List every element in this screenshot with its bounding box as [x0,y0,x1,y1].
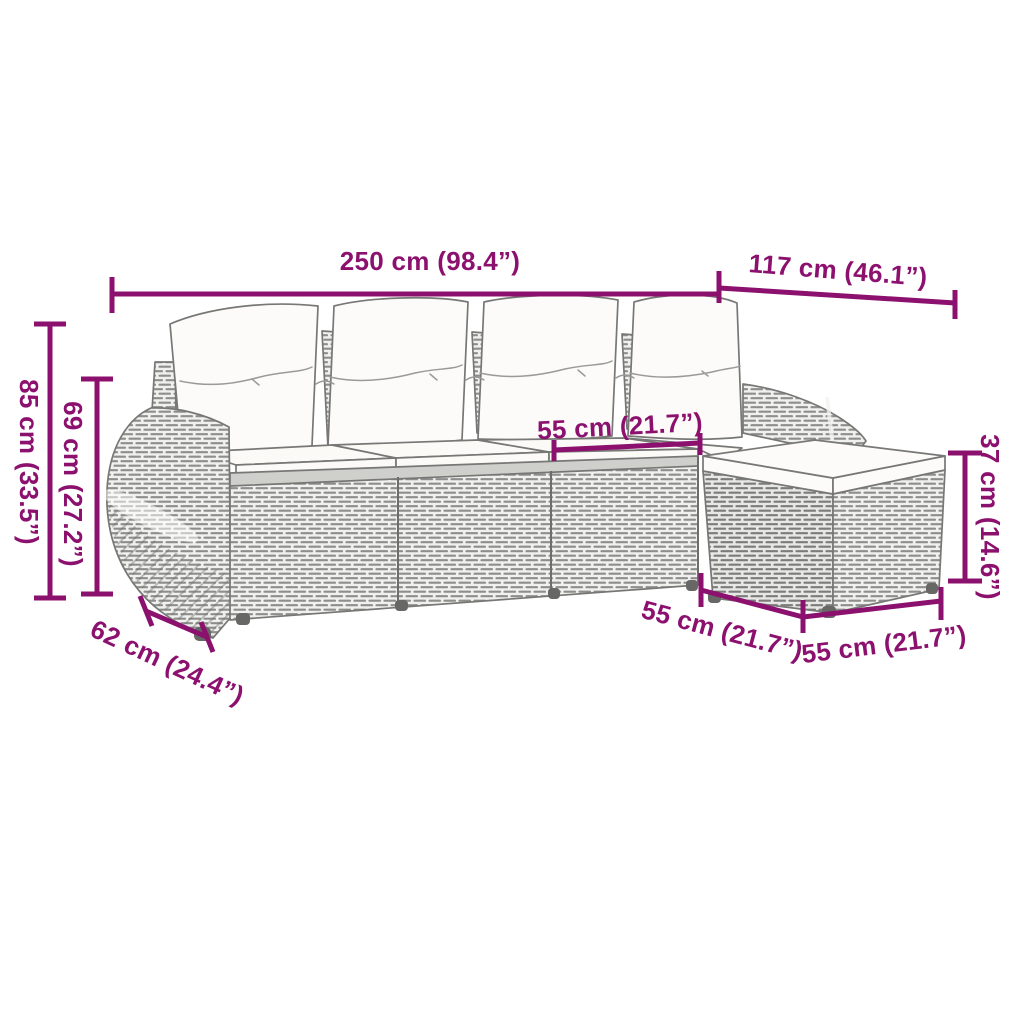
sofa-foot [548,588,560,599]
back-cushion-2 [328,298,468,447]
front-panel [230,456,698,625]
dim-total-height-label: 85 cm (33.5”) [13,379,43,545]
back-post [152,362,176,411]
footstool [703,440,945,618]
stool-foot [926,583,938,594]
sofa-foot [236,613,250,625]
dim-chaise-length-line [719,288,955,319]
left-arm [97,408,231,641]
footstool-left-face [703,471,833,613]
sofa-foot [686,580,698,591]
dim-stool-height-label: 37 cm (14.6”) [974,434,1004,600]
sofa-illustration [0,0,1024,1024]
dim-arm-height-label: 69 cm (27.2”) [57,401,87,567]
sofa-set [97,295,945,641]
dimension-diagram: 250 cm (98.4”) 117 cm (46.1”) 85 cm (33.… [0,0,1024,1024]
dim-total-width-label: 250 cm (98.4”) [340,247,521,277]
sofa-foot [395,600,408,611]
